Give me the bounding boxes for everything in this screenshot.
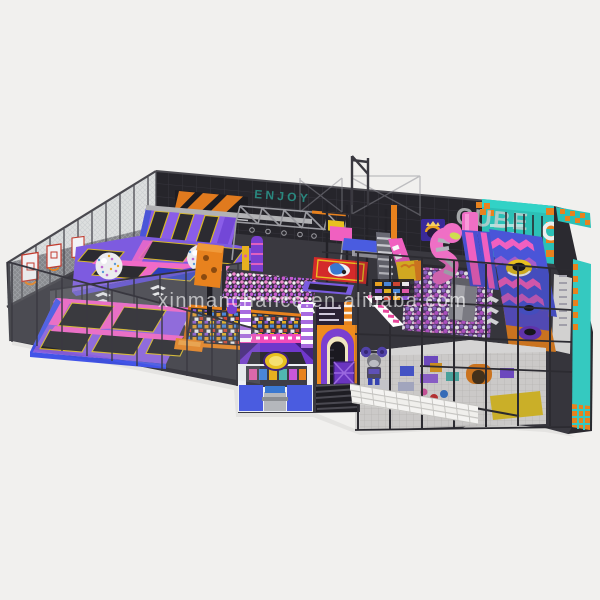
svg-text:xinmanchance.en.alibaba.com: xinmanchance.en.alibaba.com bbox=[158, 290, 466, 312]
